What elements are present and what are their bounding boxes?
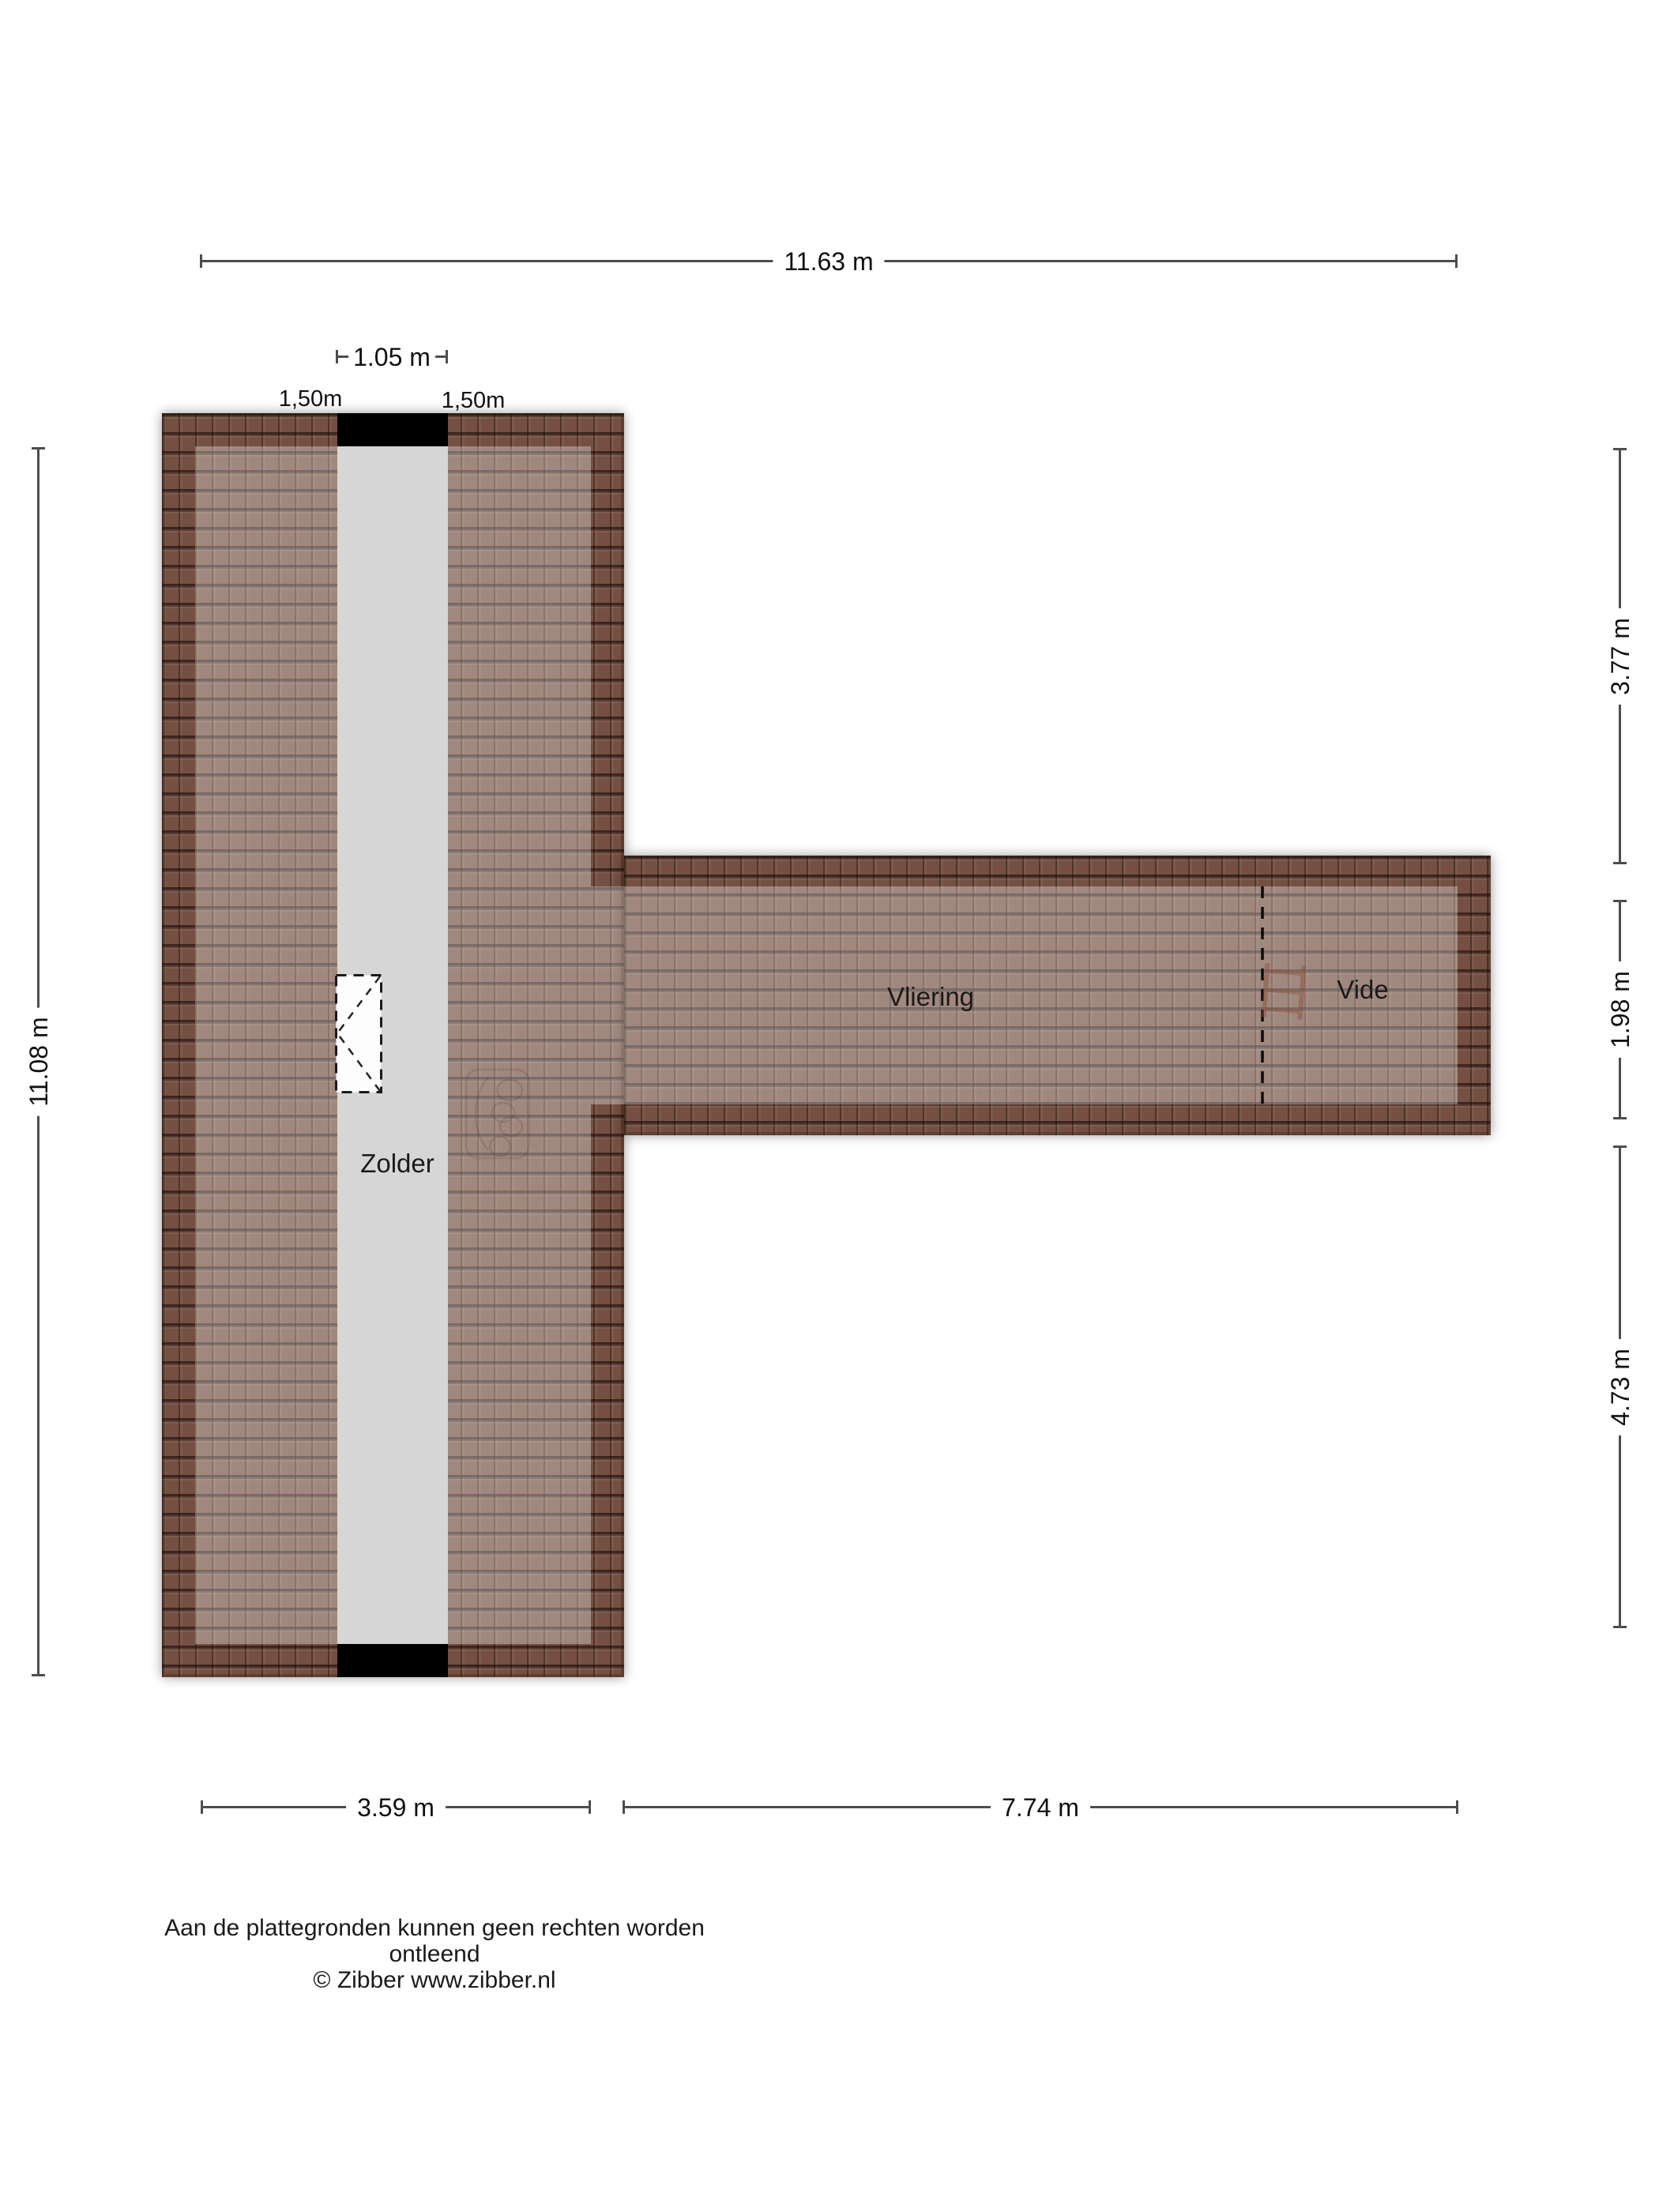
dimension-right-wing-height: 1.98 m <box>1608 900 1633 1119</box>
wall-segment-bottom <box>337 1644 448 1677</box>
dimension-right-wing-width: 7.74 m <box>623 1795 1458 1820</box>
dimension-left-wing-width: 3.59 m <box>201 1795 591 1820</box>
dimension-right-upper: 3.77 m <box>1608 448 1633 864</box>
dimension-tick <box>200 254 202 268</box>
dimension-label: 3.59 m <box>346 1795 446 1820</box>
room-label-vliering: Vliering <box>852 984 1010 1010</box>
dimension-tick <box>201 1800 203 1814</box>
dimension-label: 1.98 m <box>1608 961 1633 1058</box>
dimension-label: 11.08 m <box>26 1007 51 1115</box>
dimension-left-height: 11.08 m <box>26 447 51 1676</box>
dimension-tick <box>1613 862 1627 864</box>
dimension-label: 3.77 m <box>1608 608 1633 705</box>
dimension-tick <box>1613 1145 1627 1148</box>
dimension-tick <box>446 350 448 363</box>
dimension-tick <box>1613 1626 1627 1628</box>
dimension-tick <box>1613 1117 1627 1119</box>
dimension-tick <box>1613 448 1627 450</box>
dimension-total-width: 11.63 m <box>200 249 1458 274</box>
dimension-label: 4.73 m <box>1608 1339 1633 1435</box>
headroom-150-label-right: 1,50m <box>438 389 509 412</box>
floor-plan-page: Zolder Vliering Vide 1,50m 1,50m 11.63 m… <box>0 0 1659 2212</box>
wall-segment-top <box>337 413 448 446</box>
dimension-label: 1.05 m <box>348 344 435 370</box>
dimension-right-lower: 4.73 m <box>1608 1145 1633 1628</box>
footer-disclaimer: Aan de plattegronden kunnen geen rechten… <box>118 1915 750 1967</box>
zibber-watermark-icon <box>462 1066 533 1163</box>
dimension-label: 7.74 m <box>991 1795 1090 1820</box>
dimension-tick <box>32 447 45 450</box>
dimension-corridor-width: 1.05 m <box>336 344 448 370</box>
room-label-zolder: Zolder <box>318 1150 476 1177</box>
footer: Aan de plattegronden kunnen geen rechten… <box>118 1915 750 1993</box>
roof-window-icon <box>335 974 382 1093</box>
dimension-tick <box>1455 254 1458 268</box>
footer-copyright: © Zibber www.zibber.nl <box>118 1967 750 1993</box>
dimension-tick <box>32 1674 45 1676</box>
room-label-vide: Vide <box>1303 976 1422 1003</box>
dimension-tick <box>1613 900 1627 902</box>
headroom-150-label-left: 1,50m <box>275 387 346 411</box>
dimension-tick <box>336 350 338 363</box>
dimension-label: 11.63 m <box>773 249 884 274</box>
dimension-tick <box>623 1800 625 1814</box>
dimension-tick <box>1456 1800 1458 1814</box>
dimension-tick <box>589 1800 591 1814</box>
